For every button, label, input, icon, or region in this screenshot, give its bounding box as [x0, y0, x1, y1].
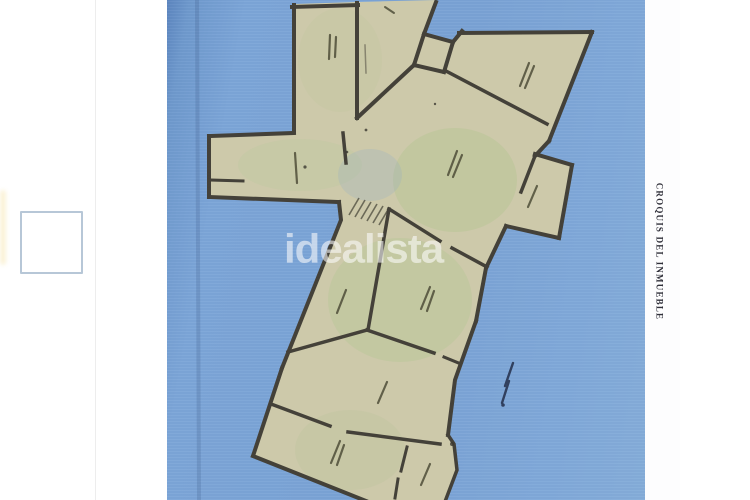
page: idealista CROQUIS DEL INMUEBLE	[0, 0, 750, 500]
floorplan-drawing	[167, 0, 645, 500]
floorplan-caption: CROQUIS DEL INMUEBLE	[654, 167, 665, 337]
floorplan-image[interactable]: idealista CROQUIS DEL INMUEBLE	[167, 0, 680, 500]
scan-edge-artifact	[0, 190, 6, 265]
vertical-divider	[95, 0, 96, 500]
empty-thumbnail-box[interactable]	[20, 211, 83, 274]
handwritten-annotation	[501, 363, 513, 407]
